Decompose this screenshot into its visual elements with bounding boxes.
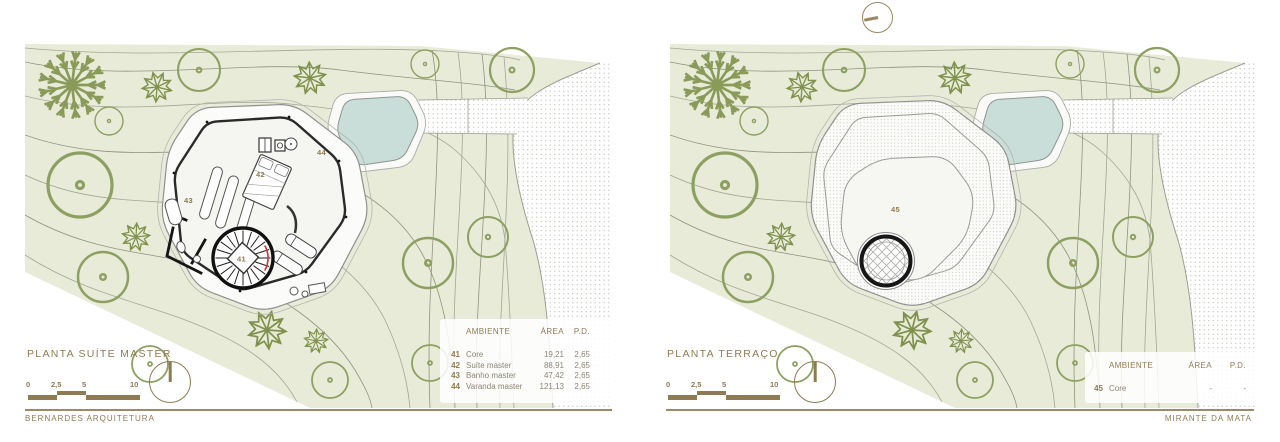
north-needle (814, 362, 817, 382)
appliance (275, 140, 285, 151)
column-dot (239, 290, 242, 293)
firm-name: BERNARDES ARQUITETURA (25, 414, 155, 423)
scale-label: 10 (770, 380, 778, 389)
drawing-sheet: { "icons": { "north_arrow": "north-arrow… (0, 0, 1280, 442)
room-schedule-right: AMBIENTE ÁREA P.D. 45 Core - - (1085, 352, 1258, 403)
scale-label: 0 (666, 380, 670, 389)
scale-label: 0 (26, 380, 30, 389)
table-header: AMBIENTE ÁREA P.D. (440, 326, 612, 337)
room-number-suite: 42 (256, 170, 265, 179)
deck-stool (290, 287, 298, 295)
north-needle (169, 362, 172, 382)
table-row: 41 Core 19,21 2,65 (440, 350, 612, 361)
scale-segment (697, 391, 726, 396)
column-dot (345, 216, 348, 219)
room-name: Suíte master (466, 361, 524, 370)
table-header: AMBIENTE ÁREA P.D. (1085, 360, 1258, 371)
room-number-terraco: 45 (891, 205, 900, 214)
room-name: Banho master (466, 371, 524, 380)
scale-label: 5 (722, 380, 726, 389)
orientation-marker-icon (862, 2, 893, 33)
room-number-varanda: 44 (317, 148, 326, 157)
title-block-rule-right (666, 409, 1254, 411)
room-pd: 2,65 (564, 361, 590, 370)
north-arrow-icon (149, 361, 191, 403)
room-pd: - (1212, 384, 1246, 393)
header-area: ÁREA (1180, 361, 1212, 370)
header-pd: P.D. (564, 327, 590, 336)
room-pd: 2,65 (564, 371, 590, 380)
scale-bar-right: 0 2,5 5 10 (668, 380, 782, 402)
room-id: 44 (440, 382, 466, 391)
column-dot (305, 271, 308, 274)
column-dot (288, 116, 291, 119)
scale-label: 2,5 (51, 380, 61, 389)
room-id: 45 (1085, 384, 1109, 393)
title-block-rule-left (25, 409, 612, 411)
room-area: - (1180, 384, 1212, 393)
north-arrow-icon (794, 361, 836, 403)
room-area: 47,42 (524, 371, 564, 380)
scale-label: 10 (130, 380, 138, 389)
column-dot (206, 121, 209, 124)
table-row: 42 Suíte master 88,91 2,65 (440, 360, 612, 371)
room-pd: 2,65 (564, 382, 590, 391)
room-number-core: 41 (237, 255, 246, 264)
scale-bar-left: 0 2,5 5 10 (28, 380, 142, 402)
plan-title-left: PLANTA SUÍTE MASTER (27, 348, 172, 360)
room-schedule-left: AMBIENTE ÁREA P.D. 41 Core 19,21 2,65 42… (440, 319, 612, 403)
room-name: Core (1109, 384, 1180, 393)
table-row: 44 Varanda master 121,13 2,65 (440, 381, 612, 392)
header-ambiente: AMBIENTE (466, 327, 524, 336)
scale-segment (668, 395, 697, 400)
room-area: 19,21 (524, 350, 564, 359)
room-area: 88,91 (524, 361, 564, 370)
scale-segment (28, 395, 57, 400)
table-row: 43 Banho master 47,42 2,65 (440, 371, 612, 382)
side-table-dot (290, 143, 292, 145)
room-id: 41 (440, 350, 466, 359)
room-number-banho: 43 (184, 196, 193, 205)
sink (194, 256, 201, 263)
column-dot (173, 172, 176, 175)
orientation-tick (864, 16, 878, 21)
room-name: Core (466, 350, 524, 359)
scale-label: 2,5 (691, 380, 701, 389)
header-area: ÁREA (524, 327, 564, 336)
plan-title-right: PLANTA TERRAÇO (667, 348, 779, 360)
header-pd: P.D. (1212, 361, 1246, 370)
scale-label: 5 (82, 380, 86, 389)
room-name: Varanda master (466, 382, 524, 391)
deck-stool (302, 291, 308, 297)
scale-segment (726, 395, 780, 400)
room-pd: 2,65 (564, 350, 590, 359)
room-area: 121,13 (524, 382, 564, 391)
column-dot (338, 160, 341, 163)
skylight-core (858, 233, 915, 290)
room-id: 42 (440, 361, 466, 370)
scale-segment (86, 395, 140, 400)
project-name: MIRANTE DA MATA (666, 414, 1252, 423)
table-row: 45 Core - - (1085, 384, 1258, 395)
scale-segment (57, 391, 86, 396)
header-ambiente: AMBIENTE (1109, 361, 1180, 370)
room-id: 43 (440, 371, 466, 380)
